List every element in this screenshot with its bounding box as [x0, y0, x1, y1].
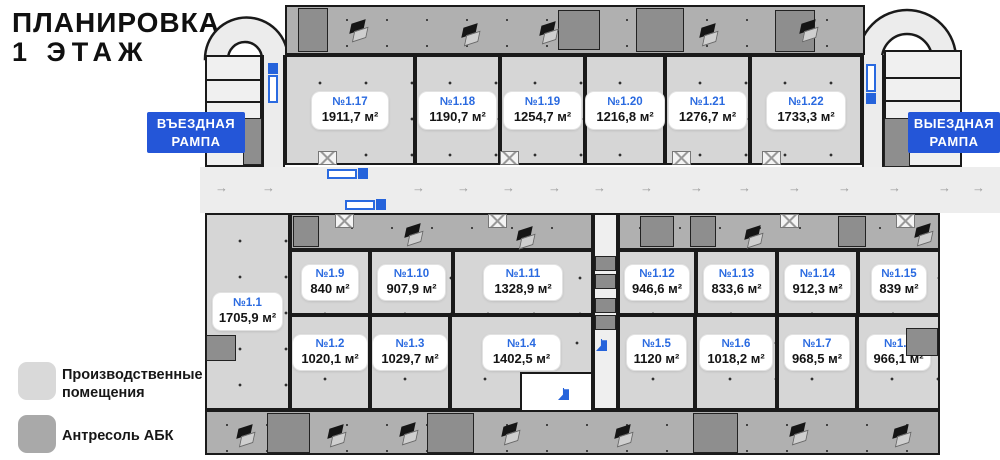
truck-trailer	[866, 64, 876, 92]
bottom-mezzanine-band	[205, 410, 940, 455]
unit-label-card: №1.6 1018,2 м²	[700, 335, 771, 370]
unit-1-12[interactable]: №1.12 946,6 м²	[618, 250, 696, 315]
unit-label-card: №1.9 840 м²	[302, 265, 357, 300]
unit-number: №1.20	[596, 96, 653, 108]
direction-arrow-icon	[262, 180, 275, 195]
unit-1-20[interactable]: №1.20 1216,8 м²	[585, 55, 665, 165]
unit-label-card: №1.11 1328,9 м²	[484, 265, 561, 300]
unit-label-card: №1.1 1705,9 м²	[213, 293, 282, 330]
tech-room	[690, 216, 716, 247]
unit-area: 1029,7 м²	[381, 351, 438, 366]
unit-label-card: №1.22 1733,3 м²	[767, 92, 844, 129]
unit-label-card: №1.2 1020,1 м²	[293, 335, 366, 370]
dock-door-icon	[488, 214, 507, 228]
unit-label-card: №1.7 968,5 м²	[785, 335, 849, 370]
truck-cab	[376, 199, 386, 210]
unit-area: 839 м²	[879, 281, 918, 296]
unit-1-3[interactable]: №1.3 1029,7 м²	[370, 315, 450, 410]
legend-swatch-production	[18, 362, 56, 400]
direction-arrow-icon	[457, 180, 470, 195]
unit-label-card: №1.19 1254,7 м²	[504, 92, 581, 129]
road-truck-icon	[327, 168, 368, 179]
elevator-shaft	[595, 298, 616, 313]
unit-number: №1.11	[494, 268, 551, 280]
unit-number: №1.22	[777, 96, 834, 108]
entry-ramp-label: ВЪЕЗДНАЯ РАМПА	[147, 112, 245, 153]
unit-number: №1.12	[632, 268, 682, 280]
unit-label-card: №1.13 833,6 м²	[704, 265, 768, 300]
dock-door-icon	[896, 214, 915, 228]
unit-area: 1328,9 м²	[494, 281, 551, 296]
unit-label-card: №1.15 839 м²	[872, 265, 925, 300]
truck-trailer	[327, 169, 357, 179]
unit-area: 1402,5 м²	[493, 351, 550, 366]
unit-area: 946,6 м²	[632, 281, 682, 296]
direction-arrow-icon	[888, 180, 901, 195]
unit-1-17[interactable]: №1.17 1911,7 м²	[285, 55, 415, 165]
unit-number: №1.1	[219, 297, 276, 309]
tech-room	[267, 413, 310, 453]
page-title: ПЛАНИРОВКА 1 ЭТАЖ	[12, 8, 220, 66]
unit-label-card: №1.4 1402,5 м²	[483, 335, 560, 370]
wall-line	[207, 79, 260, 81]
direction-arrow-icon	[412, 180, 425, 195]
entry-ramp-curve	[200, 2, 295, 62]
legend-swatch-mezzanine	[18, 415, 56, 453]
tech-room	[558, 10, 600, 50]
unit-number: №1.17	[322, 96, 379, 108]
unit-area: 833,6 м²	[711, 281, 761, 296]
unit-1-21[interactable]: №1.21 1276,7 м²	[665, 55, 750, 165]
direction-arrow-icon	[593, 180, 606, 195]
unit-1-15[interactable]: №1.15 839 м²	[858, 250, 940, 315]
direction-arrow-icon	[548, 180, 561, 195]
unit-number: №1.14	[792, 268, 842, 280]
wall-line	[207, 101, 260, 103]
truck-cab	[866, 93, 876, 104]
exit-truck-icon	[866, 64, 876, 104]
road-truck-icon	[345, 199, 386, 210]
lobby-notch	[520, 372, 593, 410]
unit-number: №1.18	[429, 96, 486, 108]
elevator-shaft	[595, 256, 616, 271]
wall-line	[886, 77, 960, 79]
direction-arrow-icon	[215, 180, 228, 195]
unit-number: №1.13	[711, 268, 761, 280]
unit-1-9[interactable]: №1.9 840 м²	[290, 250, 370, 315]
dock-door-icon	[780, 214, 799, 228]
unit-number: №1.5	[634, 338, 680, 350]
unit-number: №1.3	[381, 338, 438, 350]
entry-stairwell	[243, 118, 262, 165]
unit-area: 1733,3 м²	[777, 109, 834, 124]
tech-room	[636, 8, 684, 52]
floor-plan-page: ПЛАНИРОВКА 1 ЭТАЖ	[0, 0, 1000, 460]
unit-number: №1.2	[301, 338, 358, 350]
unit-label-card: №1.10 907,9 м²	[378, 265, 444, 300]
dock-door-icon	[672, 151, 691, 165]
entry-ramp-label-line2: РАМПА	[147, 133, 245, 151]
elevator-shaft	[595, 315, 616, 330]
unit-area: 912,3 м²	[792, 281, 842, 296]
unit-area: 968,5 м²	[792, 351, 842, 366]
exit-stairwell	[884, 118, 910, 167]
unit-area: 1190,7 м²	[429, 109, 486, 124]
unit-1-13[interactable]: №1.13 833,6 м²	[696, 250, 777, 315]
direction-arrow-icon	[972, 180, 985, 195]
unit-1-18[interactable]: №1.18 1190,7 м²	[415, 55, 500, 165]
direction-arrow-icon	[938, 180, 951, 195]
unit-label-card: №1.21 1276,7 м²	[669, 92, 746, 129]
truck-trailer	[268, 75, 278, 103]
tech-room	[906, 328, 938, 356]
unit-area: 907,9 м²	[386, 281, 436, 296]
entry-truck-icon	[268, 63, 278, 103]
unit-1-5[interactable]: №1.5 1120 м²	[618, 315, 695, 410]
unit-area: 1020,1 м²	[301, 351, 358, 366]
unit-1-6[interactable]: №1.6 1018,2 м²	[695, 315, 777, 410]
unit-number: №1.21	[679, 96, 736, 108]
exit-ramp-label-line1: ВЫЕЗДНАЯ	[908, 115, 1000, 133]
page-title-line1: ПЛАНИРОВКА	[12, 8, 220, 38]
tech-room	[640, 216, 674, 247]
unit-1-2[interactable]: №1.2 1020,1 м²	[290, 315, 370, 410]
unit-number: №1.10	[386, 268, 436, 280]
page-title-line2: 1 ЭТАЖ	[12, 38, 220, 67]
unit-number: №1.6	[707, 338, 764, 350]
dock-door-icon	[762, 151, 781, 165]
tech-room	[293, 216, 319, 247]
unit-area: 1120 м²	[634, 351, 680, 366]
unit-1-7[interactable]: №1.7 968,5 м²	[777, 315, 857, 410]
unit-1-11[interactable]: №1.11 1328,9 м²	[453, 250, 593, 315]
tech-room	[693, 413, 738, 453]
direction-arrow-icon	[640, 180, 653, 195]
tech-room	[838, 216, 866, 247]
unit-area: 840 м²	[310, 281, 349, 296]
unit-area: 1276,7 м²	[679, 109, 736, 124]
exit-ramp-label-line2: РАМПА	[908, 133, 1000, 151]
direction-arrow-icon	[788, 180, 801, 195]
unit-1-10[interactable]: №1.10 907,9 м²	[370, 250, 453, 315]
unit-number: №1.19	[514, 96, 571, 108]
direction-arrow-icon	[838, 180, 851, 195]
unit-label-card: №1.14 912,3 м²	[785, 265, 849, 300]
unit-number: №1.4	[493, 338, 550, 350]
unit-number: №1.7	[792, 338, 842, 350]
legend-label-mezzanine: Антресоль АБК	[62, 427, 232, 445]
truck-trailer	[345, 200, 375, 210]
wall-line	[886, 100, 960, 102]
unit-number: №1.15	[879, 268, 918, 280]
unit-label-card: №1.3 1029,7 м²	[373, 335, 446, 370]
entry-ramp-label-line1: ВЪЕЗДНАЯ	[147, 115, 245, 133]
unit-label-card: №1.17 1911,7 м²	[312, 92, 389, 129]
direction-arrow-icon	[738, 180, 751, 195]
direction-arrow-icon	[502, 180, 515, 195]
unit-area: 1705,9 м²	[219, 310, 276, 325]
unit-area: 1254,7 м²	[514, 109, 571, 124]
tech-room	[298, 8, 328, 52]
unit-label-card: №1.18 1190,7 м²	[419, 92, 496, 129]
dock-door-icon	[335, 214, 354, 228]
unit-number: №1.9	[310, 268, 349, 280]
dock-door-icon	[318, 151, 337, 165]
truck-cab	[358, 168, 368, 179]
unit-1-22[interactable]: №1.22 1733,3 м²	[750, 55, 862, 165]
elevator-shaft	[595, 274, 616, 289]
tech-room	[427, 413, 474, 453]
unit-area: 1911,7 м²	[322, 109, 379, 124]
unit-label-card: №1.5 1120 м²	[627, 335, 687, 370]
unit-label-card: №1.12 946,6 м²	[625, 265, 689, 300]
unit-label-card: №1.20 1216,8 м²	[586, 92, 663, 129]
direction-arrow-icon	[690, 180, 703, 195]
tech-room	[206, 335, 236, 361]
unit-area: 1216,8 м²	[596, 109, 653, 124]
truck-cab	[268, 63, 278, 74]
exit-ramp-label: ВЫЕЗДНАЯ РАМПА	[908, 112, 1000, 153]
unit-1-14[interactable]: №1.14 912,3 м²	[777, 250, 858, 315]
unit-area: 1018,2 м²	[707, 351, 764, 366]
unit-1-19[interactable]: №1.19 1254,7 м²	[500, 55, 585, 165]
legend-label-production: Производственные помещения	[62, 366, 232, 402]
dock-door-icon	[500, 151, 519, 165]
